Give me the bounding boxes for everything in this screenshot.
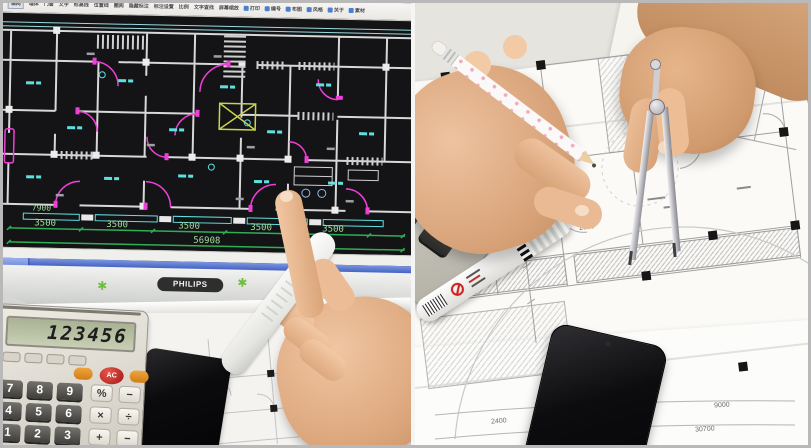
digit-key[interactable]: 9 [56,382,83,402]
compass-knob [650,59,661,70]
operator-key[interactable]: + [88,428,111,446]
operator-key[interactable]: × [89,406,112,424]
dim-30700: 30700 [695,425,715,433]
digit-key[interactable]: 7 [3,379,23,399]
desk-calculator: 123456 AC 7 8 9 % − 4 5 6 × ÷ 1 2 3 + − … [3,303,149,448]
digit-key[interactable]: 5 [25,403,52,423]
left-photo-cad-monitor: 轴网 墙体 门窗 文字 标高线 位置线 圈阅 隐藏标注 标注设置 比例 文字查找… [3,3,411,448]
digit-key[interactable]: 8 [26,381,53,401]
menu-item[interactable]: 风格 [307,6,323,13]
operator-key[interactable]: − [116,430,139,448]
dim-segment: 3500 [250,223,272,233]
menu-item[interactable]: 轴网 [8,3,24,9]
tool-icon [328,8,333,13]
menu-item[interactable]: 墙体 [29,3,39,7]
menu-item[interactable]: 打印 [244,5,260,12]
function-key[interactable] [73,367,93,380]
operator-key[interactable]: − [118,386,141,404]
digit-key[interactable]: 2 [24,425,51,445]
menu-item[interactable]: 关于 [328,7,344,14]
memory-key[interactable] [68,355,86,366]
photo-collage: 轴网 墙体 门窗 文字 标高线 位置线 圈阅 隐藏标注 标注设置 比例 文字查找… [0,0,811,448]
memory-key[interactable] [24,353,42,364]
memory-key[interactable] [3,351,21,362]
menu-item[interactable]: 编号 [265,5,281,12]
menu-item[interactable]: 屏幕缩放 [219,4,239,11]
dim-segment: 3500 [178,221,200,231]
calculator-display: 123456 [47,322,129,348]
digit-key[interactable]: 6 [55,404,82,424]
tool-icon [307,7,312,12]
menu-item[interactable]: 素材 [349,7,365,14]
tool-icon [286,7,291,12]
dim-2400: 2400 [491,417,507,425]
menu-item[interactable]: 比例 [179,3,189,10]
menu-item[interactable]: 标注设置 [154,3,174,10]
knuckle [503,35,527,59]
camera-dot [605,341,611,347]
menu-item[interactable]: 文字查找 [194,4,214,11]
menu-item[interactable]: 圈阅 [114,3,124,9]
function-key[interactable] [129,370,149,383]
memory-key[interactable] [46,354,64,365]
compass-hinge [649,99,665,115]
menu-item[interactable]: 布图 [286,6,302,13]
tool-icon [244,6,249,11]
right-photo-drafting: 2000 2400 9000 30700 0 0 1 4 [415,3,811,448]
philips-logo: PHILIPS [157,277,223,292]
cad-screen: 轴网 墙体 门窗 文字 标高线 位置线 圈阅 隐藏标注 标注设置 比例 文字查找… [3,3,411,278]
star-decal: ✱ [237,276,247,290]
menu-item[interactable]: 标高线 [74,3,89,8]
menu-item[interactable]: 门窗 [44,3,54,8]
barcode [422,294,448,317]
dim-total: 56908 [193,236,220,247]
cad-floorplan-drawing: 3500 3500 3500 3500 3500 56908 7900 [3,12,411,255]
operator-key[interactable]: % [90,384,113,402]
menu-item[interactable]: 隐藏标注 [129,3,149,10]
dim-9000: 9000 [714,401,730,409]
menu-item[interactable]: 位置线 [94,3,109,9]
operator-key[interactable]: ÷ [117,408,140,426]
fingernail [575,205,589,216]
dim-left: 7900 [32,203,52,212]
smartphone [132,347,233,448]
menu-item[interactable]: 文字 [59,3,69,8]
prohibition-icon [448,280,466,298]
tool-icon [265,6,270,11]
digit-key[interactable]: 1 [3,423,21,443]
star-decal: ✱ [97,279,107,293]
dim-segment: 3500 [34,218,56,228]
dim-segment: 3500 [106,220,128,230]
digit-key[interactable]: 3 [54,426,81,446]
tool-icon [349,8,354,13]
digit-key[interactable]: 4 [3,401,22,421]
